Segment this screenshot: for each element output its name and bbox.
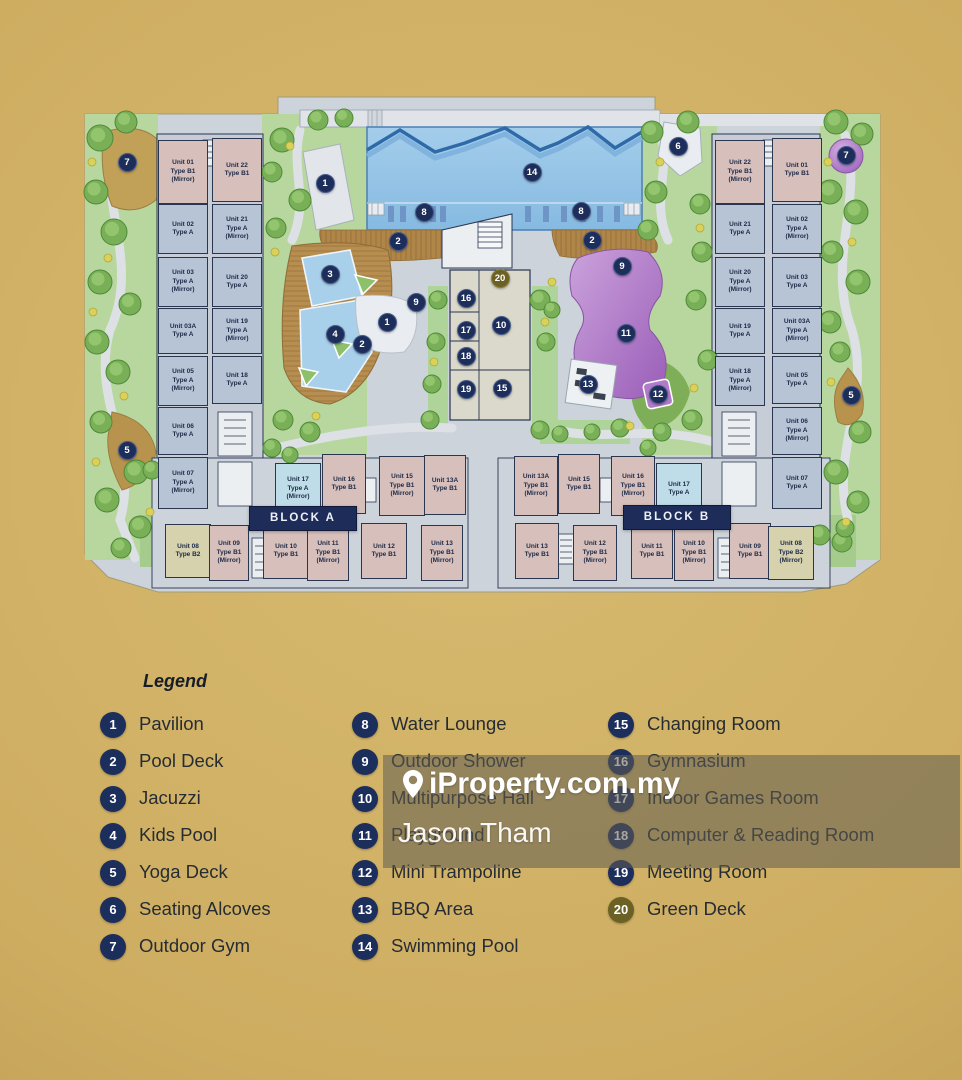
legend-number-15: 15 [608,712,634,738]
legend-item-15: 15Changing Room [608,706,874,743]
unit-label-unit-11: Unit 11 Type B1 (Mirror) [307,525,349,581]
unit-label-unit-07: Unit 07 Type A [772,457,822,509]
unit-label-unit-08: Unit 08 Type B2 (Mirror) [768,526,814,580]
unit-label-unit-18: Unit 18 Type A (Mirror) [715,356,765,406]
unit-label-unit-07: Unit 07 Type A (Mirror) [158,457,208,509]
legend-number-20: 20 [608,897,634,923]
plan-marker-5: 5 [842,386,861,405]
legend-label-1: Pavilion [139,714,204,734]
legend-label-5: Yoga Deck [139,862,228,882]
plan-marker-18: 18 [457,347,476,366]
legend-number-2: 2 [100,749,126,775]
legend-number-11: 11 [352,823,378,849]
legend-number-14: 14 [352,934,378,960]
unit-label-unit-06: Unit 06 Type A (Mirror) [772,407,822,455]
legend-item-1: 1Pavilion [100,706,271,743]
legend-number-6: 6 [100,897,126,923]
unit-label-unit-03a: Unit 03A Type A [158,308,208,354]
legend-item-5: 5Yoga Deck [100,854,271,891]
map-pin-icon [401,769,425,799]
legend-item-13: 13BBQ Area [352,891,534,928]
plan-marker-9: 9 [407,293,426,312]
legend-number-4: 4 [100,823,126,849]
unit-label-unit-21: Unit 21 Type A (Mirror) [212,204,262,254]
legend-item-7: 7Outdoor Gym [100,928,271,965]
plan-marker-20: 20 [491,269,510,288]
unit-label-unit-13: Unit 13 Type B1 [515,523,559,579]
plan-marker-2: 2 [353,335,372,354]
unit-label-unit-13a: Unit 13A Type B1 (Mirror) [514,456,558,516]
legend-number-12: 12 [352,860,378,886]
plan-marker-17: 17 [457,321,476,340]
legend-item-14: 14Swimming Pool [352,928,534,965]
legend-item-4: 4Kids Pool [100,817,271,854]
legend-label-8: Water Lounge [391,714,507,734]
plan-marker-2: 2 [389,232,408,251]
legend-label-4: Kids Pool [139,825,217,845]
plan-marker-7: 7 [837,146,856,165]
legend-number-1: 1 [100,712,126,738]
legend-item-3: 3Jacuzzi [100,780,271,817]
legend-number-8: 8 [352,712,378,738]
plan-marker-9: 9 [613,257,632,276]
plan-marker-10: 10 [492,316,511,335]
unit-label-unit-12: Unit 12 Type B1 (Mirror) [573,525,617,581]
unit-label-unit-13: Unit 13 Type B1 (Mirror) [421,525,463,581]
legend-number-7: 7 [100,934,126,960]
plan-marker-13: 13 [579,375,598,394]
legend-number-10: 10 [352,786,378,812]
legend-title: Legend [143,672,207,690]
plan-marker-11: 11 [617,324,636,343]
unit-label-unit-01: Unit 01 Type B1 (Mirror) [158,140,208,204]
legend-number-3: 3 [100,786,126,812]
unit-label-unit-12: Unit 12 Type B1 [361,523,407,579]
plan-marker-14: 14 [523,163,542,182]
watermark-agent: Jason Tham [398,819,552,847]
unit-label-unit-05: Unit 05 Type A [772,356,822,404]
unit-label-unit-20: Unit 20 Type A [212,257,262,307]
unit-label-unit-03a: Unit 03A Type A (Mirror) [772,308,822,354]
plan-marker-7: 7 [118,153,137,172]
watermark-band: iProperty.com.my Jason Tham [383,755,960,868]
unit-label-unit-10: Unit 10 Type B1 [263,523,309,579]
watermark-brand: iProperty.com.my [401,769,680,799]
unit-label-unit-03: Unit 03 Type A [772,257,822,307]
unit-label-unit-13a: Unit 13A Type B1 [424,455,466,515]
plan-marker-6: 6 [669,137,688,156]
unit-label-unit-09: Unit 09 Type B1 [729,523,771,579]
unit-label-unit-15: Unit 15 Type B1 (Mirror) [379,456,425,516]
plan-marker-19: 19 [457,380,476,399]
plan-marker-1: 1 [316,174,335,193]
legend-number-13: 13 [352,897,378,923]
plan-marker-12: 12 [649,385,668,404]
unit-label-unit-18: Unit 18 Type A [212,356,262,404]
unit-label-unit-01: Unit 01 Type B1 [772,138,822,202]
plan-marker-3: 3 [321,265,340,284]
unit-label-unit-03: Unit 03 Type A (Mirror) [158,257,208,307]
unit-label-unit-08: Unit 08 Type B2 [165,524,211,578]
legend-label-15: Changing Room [647,714,781,734]
plan-marker-5: 5 [118,441,137,460]
unit-label-unit-02: Unit 02 Type A [158,204,208,254]
plan-marker-4: 4 [326,325,345,344]
unit-label-unit-21: Unit 21 Type A [715,204,765,254]
legend-label-2: Pool Deck [139,751,223,771]
legend-label-20: Green Deck [647,899,746,919]
legend-label-6: Seating Alcoves [139,899,271,919]
unit-label-unit-20: Unit 20 Type A (Mirror) [715,257,765,307]
legend-label-3: Jacuzzi [139,788,201,808]
unit-label-unit-16: Unit 16 Type B1 [322,454,366,514]
plan-marker-1: 1 [378,313,397,332]
legend-label-13: BBQ Area [391,899,473,919]
legend-label-7: Outdoor Gym [139,936,250,956]
legend-number-9: 9 [352,749,378,775]
legend-column-1: 1Pavilion2Pool Deck3Jacuzzi4Kids Pool5Yo… [100,706,271,965]
plan-marker-2: 2 [583,231,602,250]
legend-item-8: 8Water Lounge [352,706,534,743]
unit-label-unit-09: Unit 09 Type B1 (Mirror) [209,525,249,581]
plan-marker-15: 15 [493,379,512,398]
unit-label-unit-06: Unit 06 Type A [158,407,208,455]
legend-item-6: 6Seating Alcoves [100,891,271,928]
unit-label-unit-05: Unit 05 Type A (Mirror) [158,356,208,406]
site-plan-screenshot: Unit 01 Type B1 (Mirror)Unit 22 Type B1U… [0,0,962,1080]
block-a-banner: BLOCK A [249,506,357,531]
unit-label-unit-02: Unit 02 Type A (Mirror) [772,204,822,254]
unit-label-unit-19: Unit 19 Type A (Mirror) [212,308,262,354]
unit-label-unit-22: Unit 22 Type B1 (Mirror) [715,140,765,204]
block-b-banner: BLOCK B [623,505,731,530]
unit-label-unit-15: Unit 15 Type B1 [558,454,600,514]
legend-item-2: 2Pool Deck [100,743,271,780]
plan-marker-16: 16 [457,289,476,308]
unit-label-unit-19: Unit 19 Type A [715,308,765,354]
unit-label-unit-22: Unit 22 Type B1 [212,138,262,202]
legend-item-20: 20Green Deck [608,891,874,928]
unit-label-unit-10: Unit 10 Type B1 (Mirror) [674,525,714,581]
plan-marker-8: 8 [572,202,591,221]
plan-marker-8: 8 [415,203,434,222]
unit-label-unit-11: Unit 11 Type B1 [631,523,673,579]
legend-number-5: 5 [100,860,126,886]
legend-label-14: Swimming Pool [391,936,519,956]
